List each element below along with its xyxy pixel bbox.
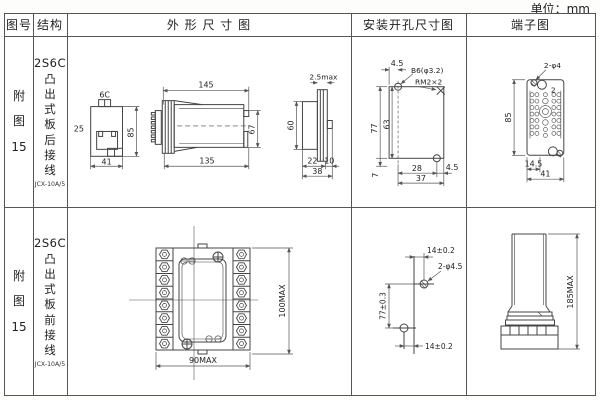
dim-41: 41 [540, 170, 550, 179]
dimension-lines [548, 234, 580, 349]
dim-77: 77±0.3 [379, 292, 388, 320]
panel-side-view [302, 90, 332, 162]
dim-28: 28 [412, 164, 422, 173]
fig-number: 附图15 [11, 264, 27, 340]
dim-185max: 185MAX [566, 275, 575, 309]
dim-67: 67 [248, 124, 257, 134]
row1-structure-cell: 2S6C 凸出式板后接线 JCX-10A/5 [33, 37, 67, 207]
wiring-label: 凸出式板后接线 [43, 72, 56, 178]
type-label: JCX-10A/5 [35, 360, 65, 368]
socket-front-view [156, 244, 250, 354]
row1-outline-cell: 6C 25 85 41 145 135 67 2.5max 60 22 10 3… [67, 37, 351, 207]
dim-85: 85 [126, 127, 135, 137]
dimension-lines [385, 253, 441, 346]
dim-25max: 2.5max [309, 73, 338, 82]
dim-25: 25 [74, 124, 84, 133]
dim-85: 85 [504, 112, 513, 122]
row1-terminal-cell: 2-φ4 2 85 14.5 41 [466, 37, 595, 207]
dim-60: 60 [287, 120, 296, 130]
dim-14-5: 14.5 [525, 160, 543, 169]
row2-mounting-cell: 14±0.2 2-φ4.5 77±0.3 14±0.2 [351, 208, 466, 396]
outline-drawing-rear: 6C 25 85 41 145 135 67 2.5max 60 22 10 3… [67, 37, 351, 207]
dim-145: 145 [198, 81, 213, 90]
row2-structure-cell: 2S6C 凸出式板前接线 JCX-10A/5 [33, 208, 67, 396]
row1-mounting-cell: 4.5 B6(φ3.2) RM2×2 77 63 7 28 4.5 37 [351, 37, 466, 207]
terminal-num-label: 2 [551, 86, 556, 95]
mount-hole-label: 2-φ4 [544, 61, 561, 70]
relay-side-view [151, 101, 248, 154]
relay-on-socket-view [501, 234, 558, 349]
dim-6c: 6C [99, 91, 110, 100]
row2-fig-no-cell: 附图15 [5, 208, 33, 396]
side-profile-view [91, 100, 123, 157]
dim-4-5-top: 4.5 [391, 59, 404, 68]
dim-14-bottom: 14±0.2 [425, 342, 453, 351]
terminal-contacts [530, 93, 561, 138]
dim-38: 38 [312, 167, 322, 176]
row1-fig-no-cell: 附图15 [5, 37, 33, 207]
type-label: JCX-10A/5 [35, 180, 65, 188]
screw-spec-label: RM2×2 [415, 78, 442, 87]
dim-7: 7 [371, 173, 380, 178]
row2-terminal-cell: 185MAX [466, 208, 595, 396]
dim-135: 135 [199, 156, 214, 165]
dim-37: 37 [416, 174, 426, 183]
dim-41: 41 [102, 157, 112, 166]
dim-100max: 100MAX [278, 284, 287, 318]
header-fig-no: 图号 [5, 14, 33, 36]
dimension-lines [156, 248, 293, 370]
model-label: 2S6C [34, 236, 66, 250]
terminal-drawing-rear: 2-φ4 2 85 14.5 41 [466, 37, 595, 207]
hole-spec-label: 2-φ4.5 [438, 262, 463, 271]
header-terminal: 端子图 [466, 14, 595, 36]
dim-77: 77 [370, 123, 379, 133]
wiring-label: 凸出式板前接线 [43, 252, 56, 358]
dim-14-top: 14±0.2 [427, 246, 455, 255]
header-structure: 结构 [33, 14, 67, 36]
hole-spec-label: B6(φ3.2) [411, 66, 443, 75]
header-mounting: 安装开孔尺寸图 [351, 14, 466, 36]
model-label: 2S6C [34, 56, 66, 70]
mounting-drawing-front: 14±0.2 2-φ4.5 77±0.3 14±0.2 [351, 208, 466, 396]
cutout-outline [389, 81, 445, 165]
header-outline: 外 形 尺 寸 图 [67, 14, 351, 36]
mounting-drawing-rear: 4.5 B6(φ3.2) RM2×2 77 63 7 28 4.5 37 [351, 37, 466, 207]
fig-number: 附图15 [11, 84, 27, 160]
terminal-drawing-front: 185MAX [466, 208, 595, 396]
dim-4-5-right: 4.5 [446, 163, 459, 172]
catalog-page: 单位：mm 图号 结构 外 形 尺 寸 图 安装开孔尺寸图 端子图 附图15 2… [0, 0, 600, 400]
dim-63: 63 [383, 119, 392, 129]
outline-drawing-front: 100MAX 90MAX [67, 208, 351, 396]
dim-10: 10 [324, 156, 334, 165]
hole-layout [393, 256, 434, 354]
dim-22: 22 [307, 156, 317, 165]
dim-90max: 90MAX [189, 356, 218, 365]
dimension-table: 图号 结构 外 形 尺 寸 图 安装开孔尺寸图 端子图 附图15 2S6C 凸出… [4, 13, 596, 396]
row2-outline-cell: 100MAX 90MAX [67, 208, 351, 396]
